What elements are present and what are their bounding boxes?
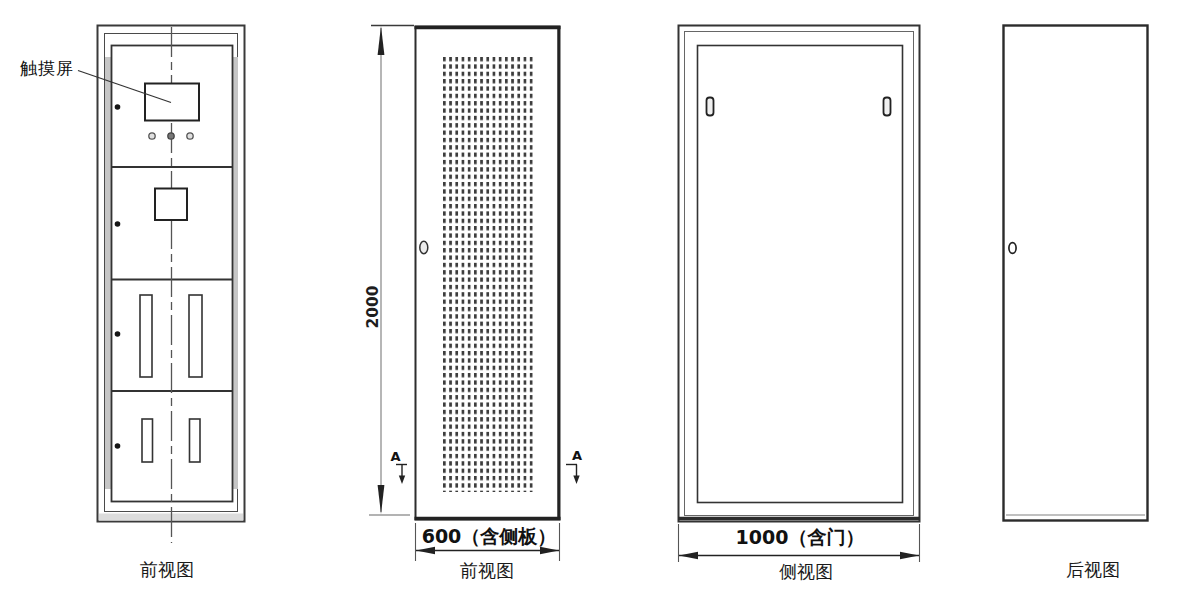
rear-view-label: 后视图 <box>1066 560 1120 580</box>
height-dimension-text: 2000 <box>364 285 382 328</box>
section-cut-marker-left: A <box>390 449 407 484</box>
hinge-dot <box>115 443 121 449</box>
panel-handle-slot <box>884 98 891 116</box>
vent-slot <box>190 419 201 462</box>
hinge-dot <box>115 331 121 337</box>
touch-screen-annotation: 触摸屏 <box>20 59 74 78</box>
panel-handle-slot <box>707 98 714 116</box>
section-letter: A <box>390 449 400 464</box>
indicator-light-icon <box>168 133 174 139</box>
vent-slot <box>142 419 153 462</box>
arrow-up-icon <box>378 26 385 55</box>
arrow-right-icon <box>900 552 919 559</box>
meter-cutout <box>155 189 187 221</box>
arrow-down-icon <box>378 485 385 514</box>
indicator-light-icon <box>187 133 193 139</box>
depth-dimension-text: 1000（含门） <box>736 526 865 548</box>
arrow-down-icon <box>399 476 405 485</box>
engineering-drawing-canvas: 触摸屏 前视图 2000 A A <box>0 0 1177 595</box>
arrow-down-icon <box>573 476 579 485</box>
front-panel-view-label: 前视图 <box>140 560 194 580</box>
front-door-view: 2000 A A 600（含侧板） 前视图 <box>364 26 583 582</box>
vent-slot <box>189 295 202 377</box>
rear-door-outline <box>1004 26 1148 521</box>
hinge-dot <box>115 221 121 227</box>
left-side-post <box>105 57 112 489</box>
side-view: 1000（含门） 侧视图 <box>678 26 920 583</box>
width-dimension-text: 600（含侧板） <box>422 525 557 547</box>
front-door-view-label: 前视图 <box>460 561 514 581</box>
hinge-dot <box>115 104 121 110</box>
indicator-light-icon <box>149 133 155 139</box>
section-cut-marker-right: A <box>566 448 582 484</box>
vent-slot <box>140 295 152 377</box>
front-panel-view: 触摸屏 前视图 <box>20 26 245 581</box>
side-view-label: 侧视图 <box>779 562 833 582</box>
side-panel <box>698 46 903 503</box>
arrow-right-icon <box>540 547 559 554</box>
rear-view: 后视图 <box>1004 26 1148 581</box>
arrow-left-icon <box>416 547 435 554</box>
section-letter: A <box>572 448 582 463</box>
arrow-left-icon <box>679 552 698 559</box>
perforation-grid <box>443 57 533 492</box>
door-lock-icon <box>1009 243 1016 254</box>
cabinet-drawing-svg: 触摸屏 前视图 2000 A A <box>0 0 1177 595</box>
door-lock-icon <box>420 241 428 254</box>
touch-screen <box>145 84 199 121</box>
